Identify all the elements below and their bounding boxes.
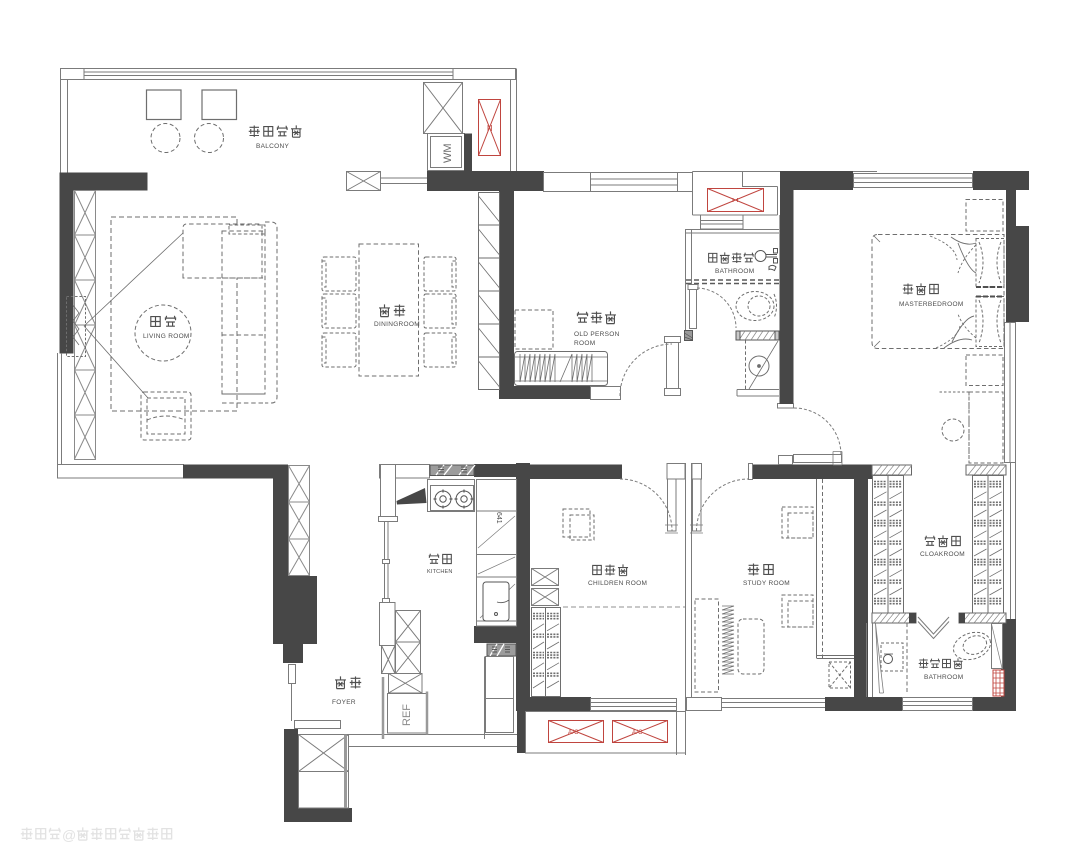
svg-text:ROOM: ROOM: [574, 340, 595, 347]
svg-text:FOYER: FOYER: [332, 699, 356, 706]
svg-text:WM: WM: [442, 143, 454, 163]
svg-text:OLD PERSON: OLD PERSON: [574, 331, 620, 338]
svg-text:KITCHEN: KITCHEN: [427, 569, 453, 575]
svg-text:@: @: [62, 827, 76, 843]
svg-text:A/C: A/C: [568, 730, 579, 736]
svg-text:BALCONY: BALCONY: [256, 143, 290, 150]
svg-text:BATHROOM: BATHROOM: [715, 268, 754, 275]
svg-text:MASTERBEDROOM: MASTERBEDROOM: [899, 301, 964, 308]
svg-text:A/C: A/C: [632, 730, 643, 736]
svg-text:641: 641: [495, 512, 502, 524]
svg-text:REF: REF: [401, 704, 413, 726]
svg-text:CHILDREN ROOM: CHILDREN ROOM: [588, 580, 647, 587]
svg-text:DININGROOM: DININGROOM: [374, 321, 420, 328]
svg-text:BATHROOM: BATHROOM: [924, 674, 963, 681]
svg-text:CLOAKROOM: CLOAKROOM: [920, 551, 965, 558]
svg-text:STUDY ROOM: STUDY ROOM: [743, 580, 790, 587]
svg-text:LIVING ROOM: LIVING ROOM: [143, 333, 190, 340]
